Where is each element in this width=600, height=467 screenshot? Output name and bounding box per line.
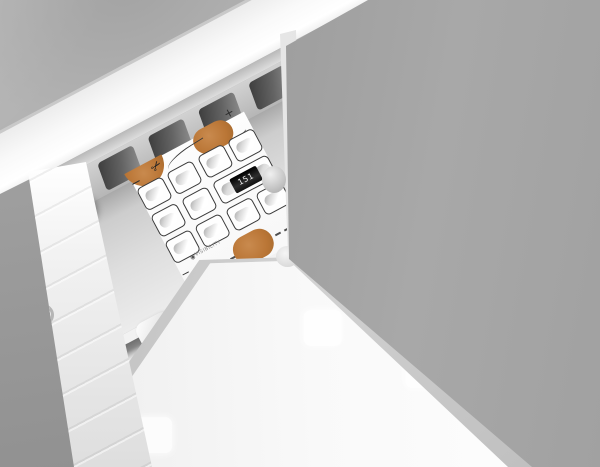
screw-boss-side bbox=[262, 166, 286, 193]
scene-led-profile-render: + − ✂ VAS 151◉ VISIBILITY−✂ bbox=[0, 0, 600, 467]
pad-highlight bbox=[158, 211, 180, 230]
pad-highlight bbox=[234, 136, 256, 155]
pad-highlight bbox=[204, 152, 226, 171]
micro-text: ◉ VISIBILITY bbox=[189, 253, 197, 262]
resistor-body: 151 bbox=[229, 165, 263, 193]
pad-highlight bbox=[174, 168, 196, 187]
led-glow-square bbox=[304, 310, 342, 346]
pad-highlight bbox=[189, 194, 211, 213]
pad-highlight bbox=[232, 205, 254, 224]
pad-highlight bbox=[144, 184, 166, 203]
pad-highlight bbox=[202, 221, 224, 240]
